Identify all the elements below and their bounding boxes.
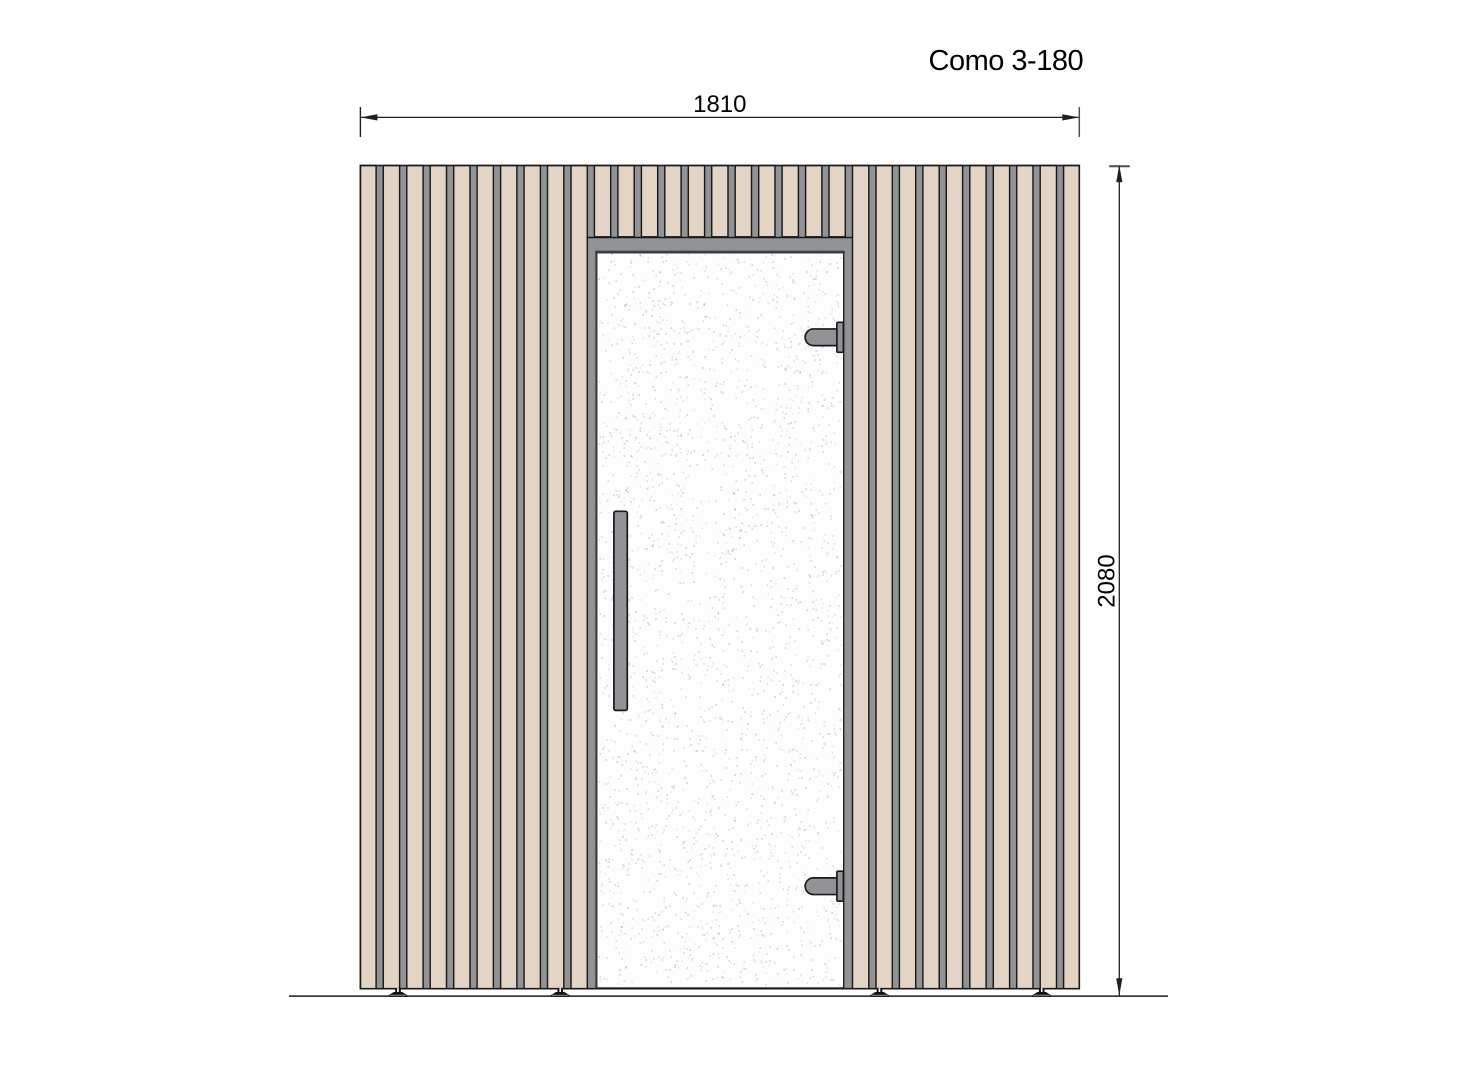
svg-text:Como 3-180: Como 3-180	[929, 45, 1084, 77]
svg-text:2080: 2080	[1093, 554, 1120, 607]
svg-text:1810: 1810	[693, 91, 746, 118]
